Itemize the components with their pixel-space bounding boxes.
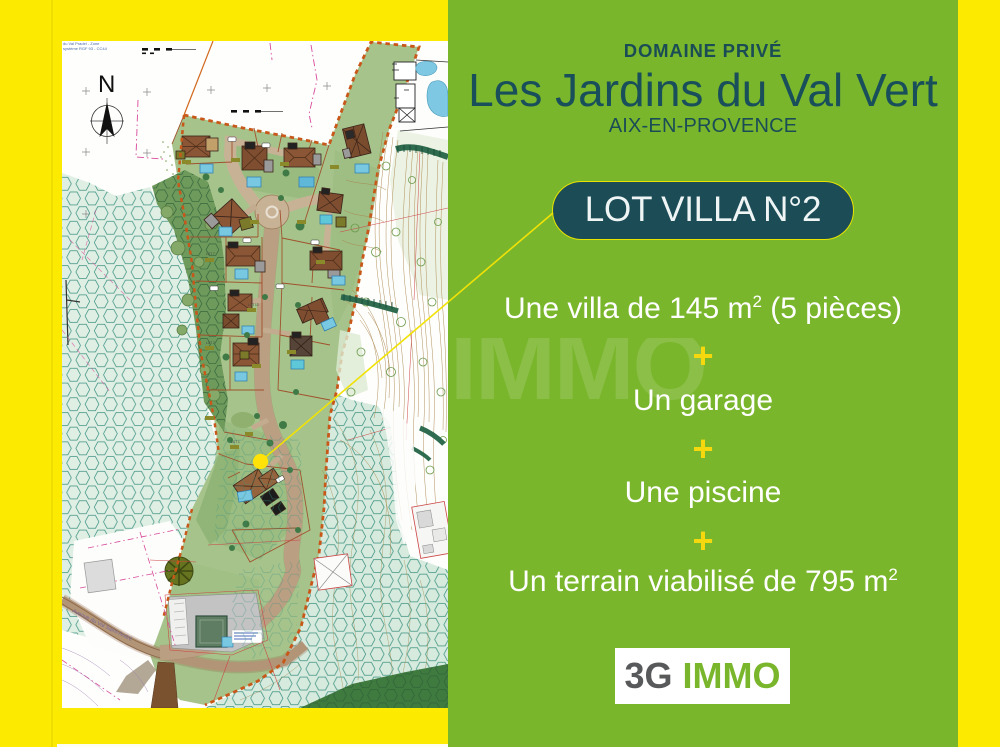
- svg-text:LOT 13: LOT 13: [248, 303, 259, 307]
- svg-text:LOT 1: LOT 1: [231, 440, 240, 444]
- svg-text:LOT 7: LOT 7: [206, 252, 215, 256]
- svg-text:système RGF 93 - CC44: système RGF 93 - CC44: [63, 46, 108, 51]
- svg-text:N: N: [98, 71, 115, 98]
- svg-text:LOT 2: LOT 2: [206, 341, 215, 345]
